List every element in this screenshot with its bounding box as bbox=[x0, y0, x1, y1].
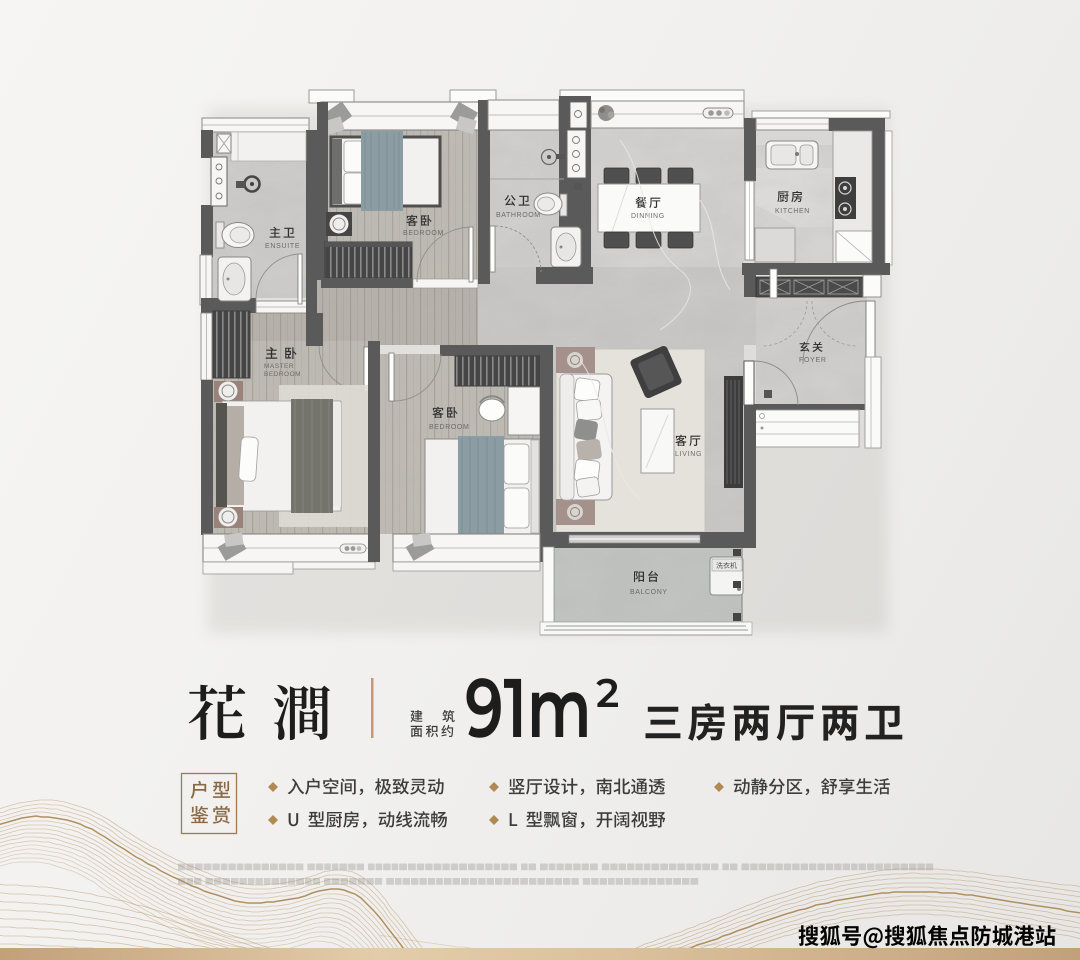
svg-text:BALCONY: BALCONY bbox=[630, 589, 668, 596]
svg-text:BEDROOM: BEDROOM bbox=[429, 424, 469, 431]
svg-text:LIVING: LIVING bbox=[675, 451, 702, 458]
svg-text:BATHROOM: BATHROOM bbox=[496, 212, 541, 219]
svg-text:KITCHEN: KITCHEN bbox=[775, 208, 810, 215]
svg-text:MASTER: MASTER bbox=[264, 363, 294, 370]
svg-text:BEDROOM: BEDROOM bbox=[264, 371, 301, 378]
svg-text:FOYER: FOYER bbox=[799, 357, 827, 364]
svg-text:ENSUITE: ENSUITE bbox=[265, 243, 300, 250]
svg-text:BEDROOM: BEDROOM bbox=[403, 230, 444, 237]
